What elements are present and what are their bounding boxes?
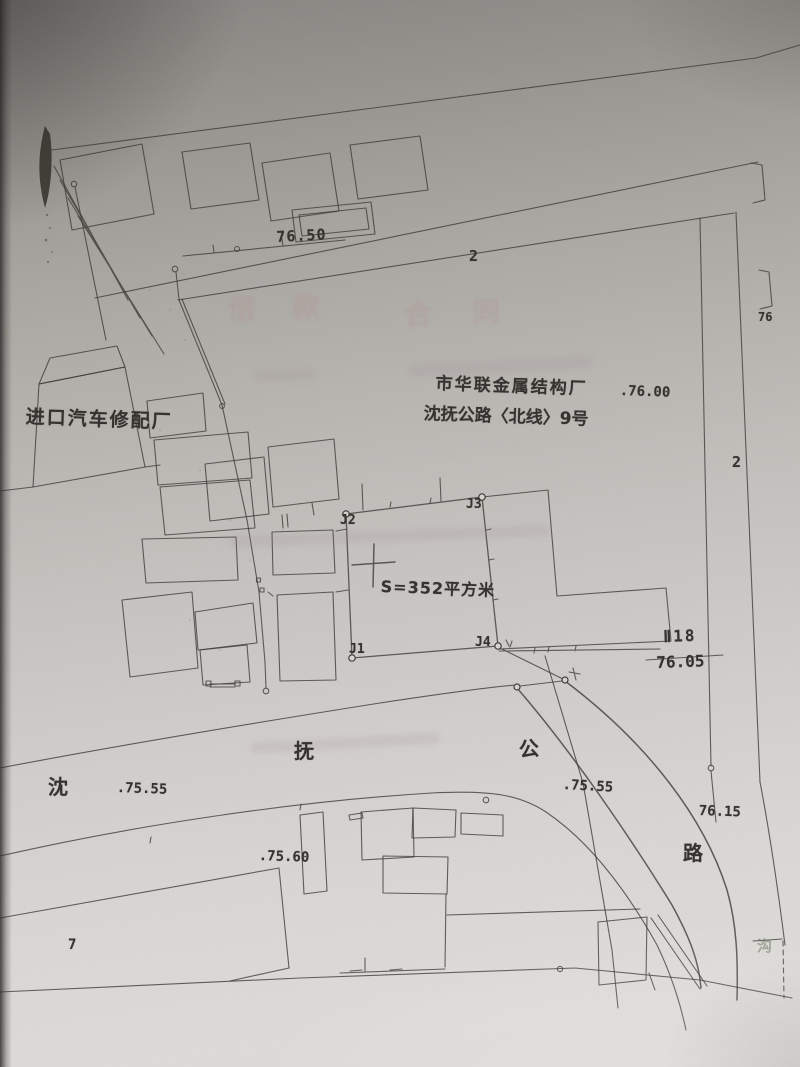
label-repair-factory: 进口汽车修配厂 [25,408,173,432]
label-point-j2: J2 [340,514,356,527]
label-point-j1: J1 [349,643,365,656]
label-road-gong: 公 [518,738,540,760]
label-elevation-7600: .76.00 [620,384,671,400]
bleedthrough-word-contract: 合同 [404,297,541,330]
label-benchmark-id: Ⅱ18 [663,628,697,645]
label-road-shen: 沈 [48,777,68,797]
label-point-j4: J4 [475,636,491,649]
survey-map-photo: 借款 合同 76.50 2 市华联金属结构厂 沈抚公路〈北线〉9号 .76.00… [0,0,800,1067]
label-elevation-7615: 76.15 [699,804,742,819]
label-elevation-7555-east: .75.55 [562,778,613,795]
label-point-j3: J3 [466,498,482,511]
label-elevation-7650: 76.50 [276,227,327,245]
bleedthrough-word-loan: 借款 [228,292,357,324]
label-road-fu: 抚 [294,741,314,761]
label-parcel-7: 7 [68,938,76,952]
label-benchmark-elevation: 76.05 [656,653,705,671]
label-elevation-7555-west: .75.55 [117,781,168,797]
label-elevation-7560: .75.60 [259,849,310,865]
label-plot-area: S=352平方米 [380,579,495,599]
label-elevation-76-partial: 76 [758,311,772,323]
label-parcel-2-right: 2 [732,455,741,470]
label-parcel-2-top: 2 [469,249,478,264]
label-road-lu: 路 [683,843,703,863]
map-linework [0,0,800,1067]
label-ditch: 沟 [757,939,772,954]
